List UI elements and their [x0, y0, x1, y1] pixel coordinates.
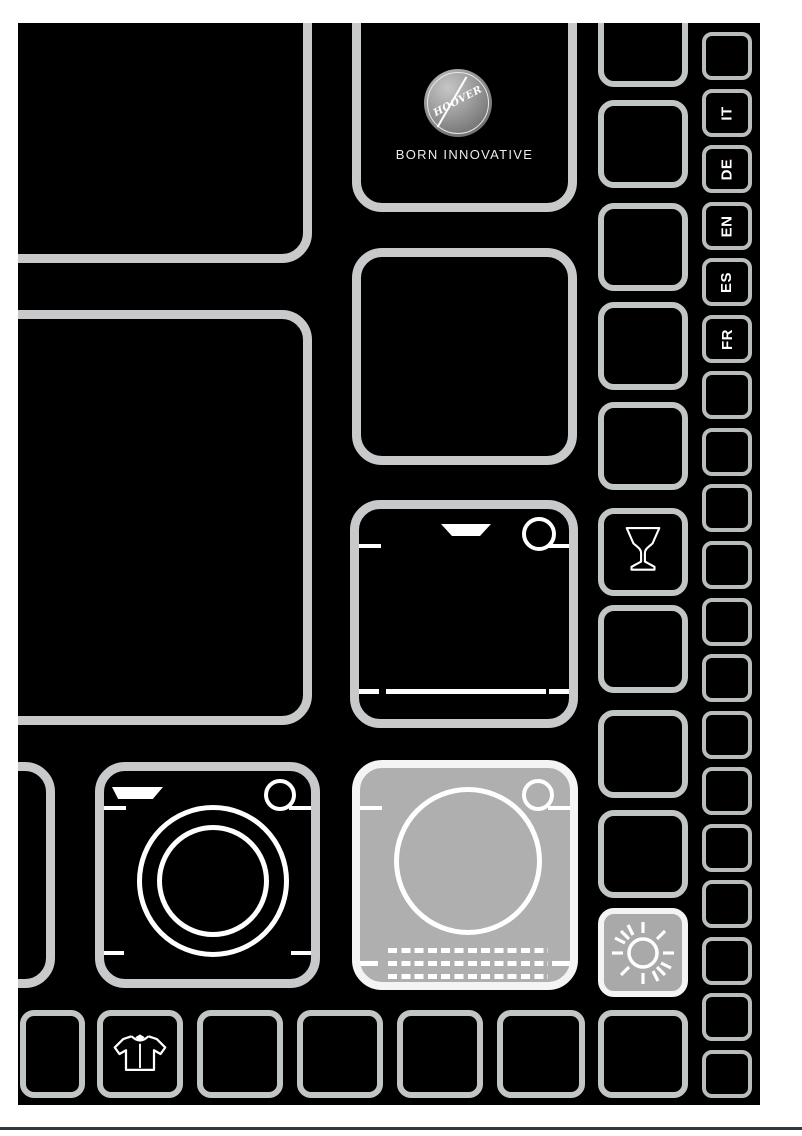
- dishwasher-tick-right: [547, 544, 569, 548]
- wine-glass-icon: [620, 525, 666, 579]
- language-tile-it: IT: [702, 89, 752, 137]
- right-tile-11: [702, 598, 752, 646]
- dryer-vent-grille: [388, 948, 548, 979]
- right-tile-16: [702, 880, 752, 928]
- hoover-logo: HOOVER: [424, 69, 492, 137]
- washer-tick-right: [289, 806, 311, 810]
- right-tile-1: [702, 32, 752, 80]
- dryer-tick-bottom-right: [552, 961, 570, 966]
- right-tile-17: [702, 937, 752, 985]
- dryer-tick-bottom-left: [360, 961, 378, 966]
- bottom-tile-4: [297, 1010, 383, 1098]
- language-tile-en: EN: [702, 202, 752, 250]
- manual-cover-page: HOOVER BORN INNOVATIVE: [0, 0, 802, 1136]
- language-tile-es: ES: [702, 258, 752, 306]
- right-tile-8: [702, 428, 752, 476]
- tile-dishwasher: [350, 500, 578, 728]
- washer-tick-bottom-right: [291, 951, 311, 955]
- dishwasher-tick-bottom-left: [359, 689, 379, 694]
- square-tile-2: [598, 100, 688, 188]
- bottom-tile-shirt: [97, 1010, 183, 1098]
- right-tile-13: [702, 711, 752, 759]
- tile-left-cut: [18, 762, 55, 988]
- square-tile-4: [598, 302, 688, 390]
- page-footer-rule: [0, 1127, 802, 1130]
- square-tile-1: [598, 23, 688, 87]
- language-label-fr: FR: [719, 329, 736, 350]
- dishwasher-handle: [441, 524, 491, 536]
- dryer-tick-left: [360, 806, 382, 810]
- dishwasher-tick-bottom-right: [549, 689, 569, 694]
- language-label-es: ES: [718, 271, 735, 292]
- bottom-tile-1: [20, 1010, 85, 1098]
- square-tile-wine-glass: [598, 508, 688, 596]
- dishwasher-base-line: [386, 689, 546, 694]
- right-tile-10: [702, 541, 752, 589]
- language-label-it: IT: [719, 106, 736, 120]
- right-tile-14: [702, 767, 752, 815]
- bottom-tile-7: [598, 1010, 688, 1098]
- tile-washing-machine: [95, 762, 320, 988]
- right-tile-15: [702, 824, 752, 872]
- shirt-icon: [110, 1026, 170, 1082]
- washer-tick-left: [104, 806, 126, 810]
- square-tile-9: [598, 810, 688, 898]
- square-tile-8: [598, 710, 688, 798]
- right-tile-9: [702, 484, 752, 532]
- washer-tick-bottom-left: [104, 951, 124, 955]
- square-tile-3: [598, 203, 688, 291]
- square-tile-5: [598, 402, 688, 490]
- tile-tumble-dryer: [352, 760, 578, 990]
- right-tile-18: [702, 993, 752, 1041]
- right-tile-12: [702, 654, 752, 702]
- sun-icon: [610, 920, 676, 986]
- washer-detergent-drawer: [112, 787, 163, 799]
- brand-tagline: BORN INNOVATIVE: [352, 147, 577, 162]
- bottom-tile-3: [197, 1010, 283, 1098]
- bottom-tile-5: [397, 1010, 483, 1098]
- tile-left-large: [18, 310, 312, 725]
- cover-black-area: HOOVER BORN INNOVATIVE: [18, 23, 760, 1105]
- dishwasher-tick-left: [359, 544, 381, 548]
- dryer-drum: [394, 787, 542, 935]
- washer-door-inner: [157, 825, 269, 937]
- language-label-en: EN: [719, 215, 736, 237]
- language-label-de: DE: [719, 158, 736, 180]
- language-tile-de: DE: [702, 145, 752, 193]
- bottom-tile-6: [497, 1010, 585, 1098]
- dryer-tick-right: [548, 806, 570, 810]
- language-tile-fr: FR: [702, 315, 752, 363]
- tile-top-left-large: [18, 23, 312, 263]
- square-tile-sun: [598, 908, 688, 997]
- square-tile-7: [598, 605, 688, 693]
- right-tile-19: [702, 1050, 752, 1098]
- right-tile-7: [702, 371, 752, 419]
- tile-middle-empty: [352, 248, 577, 465]
